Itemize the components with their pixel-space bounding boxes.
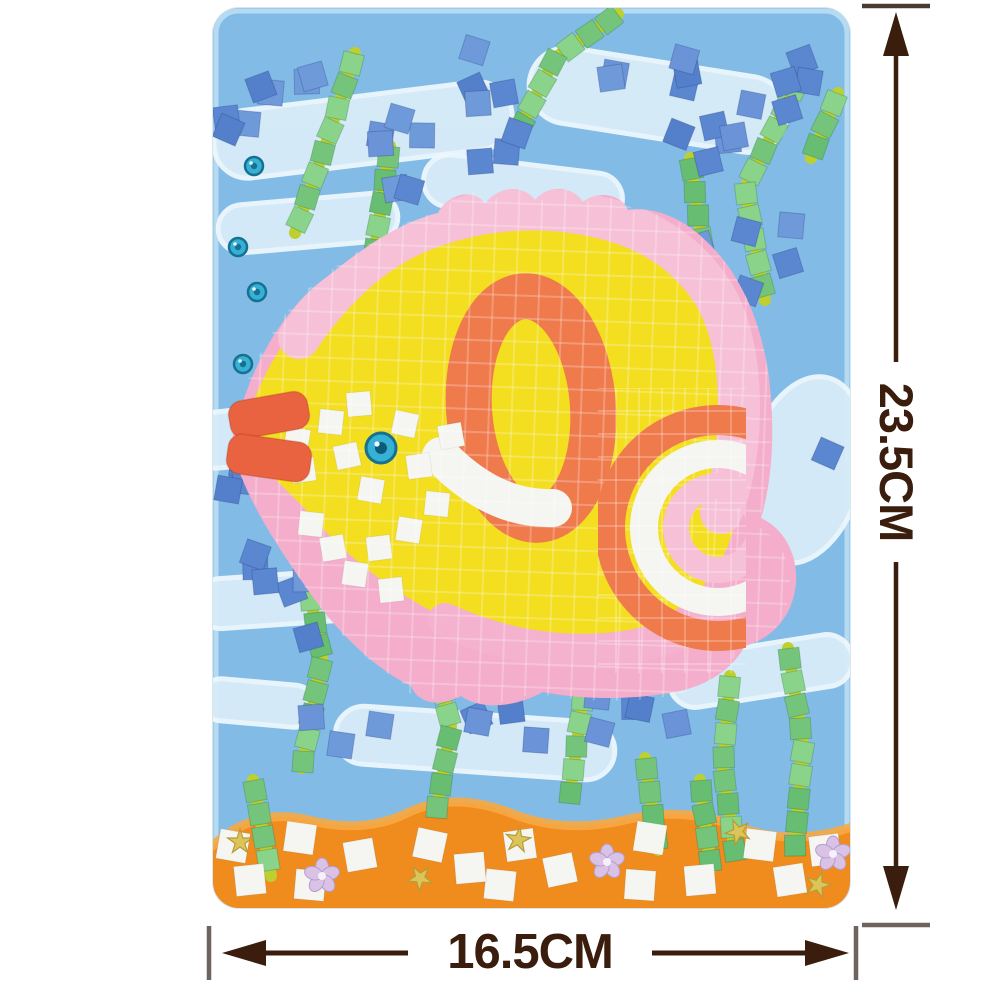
- width-dimension-label: 16.5CM: [430, 924, 630, 980]
- height-dimension-label: 23.5CM: [867, 362, 927, 562]
- gem-sequins: [229, 157, 266, 373]
- mosaic-board: [213, 8, 850, 908]
- fish-eye-gem: [366, 433, 396, 463]
- product-photo: 23.5CM 16.5CM: [0, 0, 1002, 1002]
- mosaic-scene: [213, 8, 850, 908]
